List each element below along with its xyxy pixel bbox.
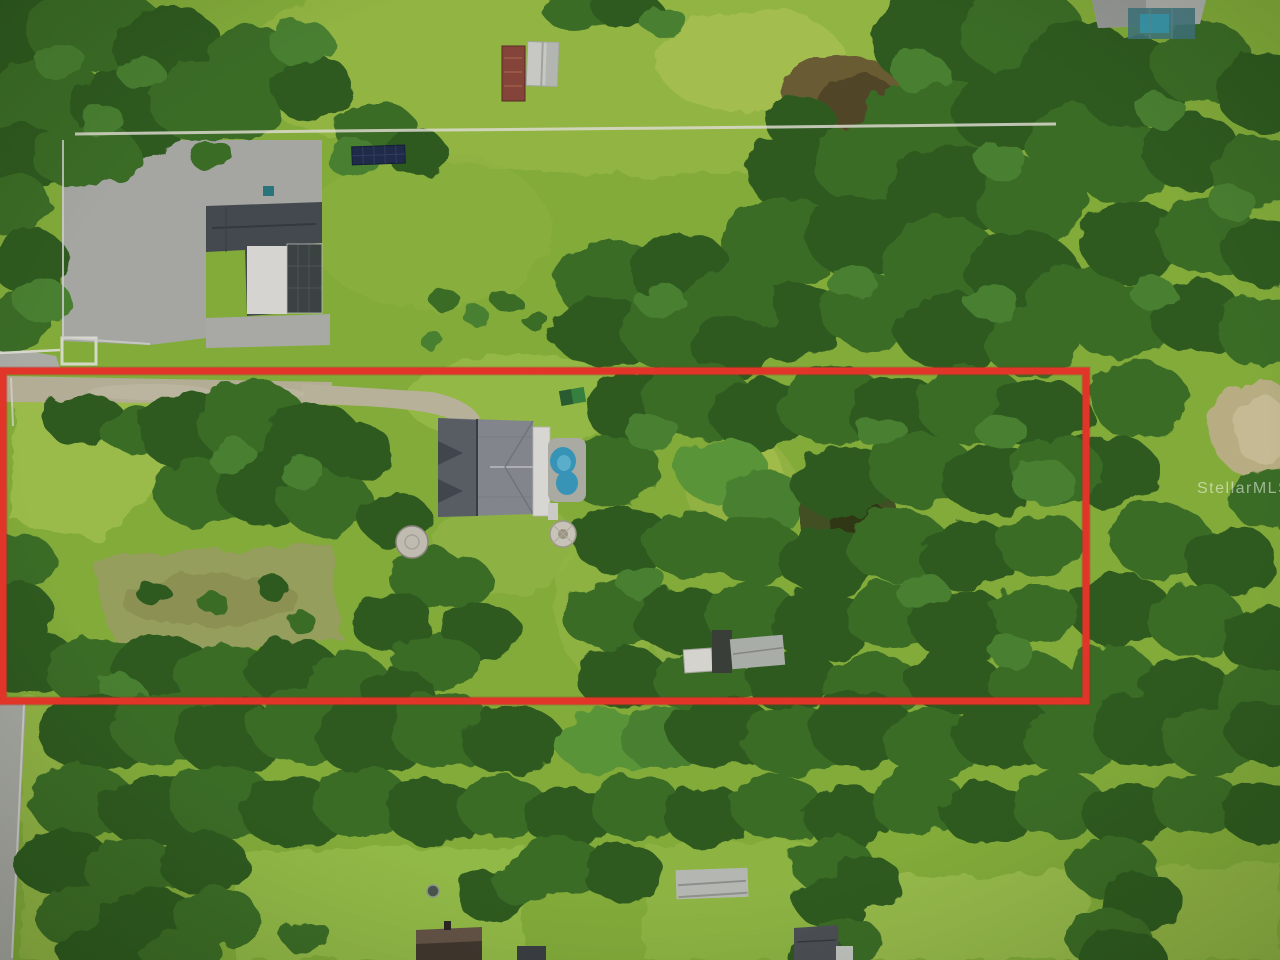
- aerial-photo: StellarMLS: [0, 0, 1280, 960]
- aerial-photo-canvas: StellarMLS: [0, 0, 1280, 960]
- mls-watermark: StellarMLS: [1197, 480, 1280, 497]
